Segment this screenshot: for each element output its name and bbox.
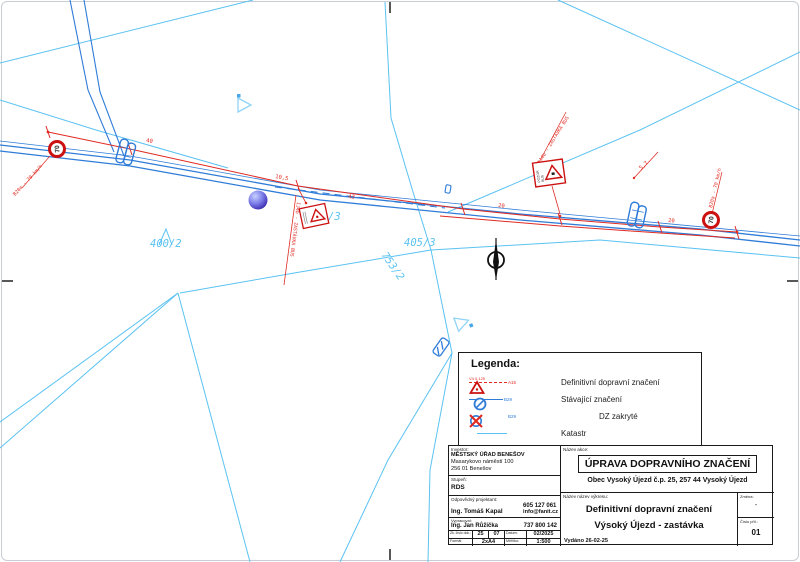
sign-code: B29 bbox=[508, 414, 516, 419]
sheet-number-cell: Číslo příl.: 01 bbox=[738, 518, 774, 546]
doc-no-year: 25 bbox=[473, 531, 489, 539]
dim-label: 40 bbox=[146, 138, 153, 145]
scale-label-cell: Měřítko: bbox=[505, 539, 527, 547]
change-cell: Změna: - bbox=[738, 493, 774, 518]
speed-limit-sign-left: 70 bbox=[50, 142, 65, 157]
title-block: Investor: MĚSTSKÝ ÚŘAD BENEŠOV Masarykov… bbox=[448, 445, 773, 545]
speed-limit-sign-right: 70 bbox=[704, 213, 719, 228]
legend-item-label: DZ zakryté bbox=[599, 412, 638, 421]
legend-item-label: Katastr bbox=[561, 429, 586, 438]
legend-item-cadastre: Katastr bbox=[469, 425, 701, 442]
legend-box: Legenda: V4 0,125 A15 Definitivní doprav… bbox=[458, 352, 702, 446]
drawing-title-line2: Výsoký Újezd - zastávka bbox=[561, 520, 737, 531]
drawing-title-line1: Definitivní dopravní značení bbox=[561, 504, 737, 515]
drawing-label: Název název výkresu: bbox=[561, 493, 737, 499]
sheet-value: 01 bbox=[738, 528, 774, 537]
stage-value: RDS bbox=[449, 482, 560, 491]
sheet-label: Číslo příl.: bbox=[738, 518, 774, 524]
no-standing-sign-icon bbox=[473, 397, 487, 411]
covered-sign-icon bbox=[469, 414, 483, 428]
sign-code: A15 bbox=[508, 380, 516, 385]
change-label: Změna: bbox=[738, 493, 774, 499]
investor-line: 256 01 Benešov bbox=[449, 466, 560, 473]
action-subtitle: Obec Vysoký Újezd č.p. 25, 257 44 Vysoký… bbox=[561, 477, 774, 484]
drawing-page: 40 10,5 43 20 20 5,7 B20a - 70 km/h B20a… bbox=[0, 0, 800, 562]
author-cell: Vypracoval: Ing. Jan Růžička 737 800 142 bbox=[449, 518, 561, 531]
road-lines bbox=[0, 0, 800, 246]
warning-sign-right: POZOR BUS bbox=[532, 159, 565, 187]
sign-code: B29 bbox=[504, 397, 512, 402]
investor-line: MĚSTSKÝ ÚŘAD BENEŠOV bbox=[449, 452, 560, 459]
dim-label: 5,7 bbox=[638, 160, 649, 171]
speed-limit-value: 70 bbox=[54, 145, 62, 153]
action-title: ÚPRAVA DOPRAVNÍHO ZNAČENÍ bbox=[578, 455, 757, 473]
warning-sign-mid bbox=[299, 204, 329, 229]
legend-title: Legenda: bbox=[471, 358, 701, 370]
legend-item-covered: B29 DZ zakryté bbox=[469, 408, 701, 425]
date-label: Datum: bbox=[505, 531, 526, 535]
legend-item-definitive: V4 0,125 A15 Definitivní dopravní značen… bbox=[469, 374, 701, 391]
legend-item-label: Stávající značení bbox=[561, 395, 622, 404]
bus-stop-label-right: IJ4b - ZASTÁVKA BUS bbox=[536, 115, 571, 165]
cadastre-line-icon bbox=[477, 433, 507, 434]
format-label: Formát bbox=[449, 539, 472, 543]
author-name: Ing. Jan Růžička bbox=[451, 523, 498, 529]
leader-right-sign bbox=[552, 186, 560, 214]
drawing-title-cell: Název název výkresu: Definitivní dopravn… bbox=[561, 493, 738, 546]
north-arrow-icon bbox=[488, 238, 504, 280]
designer-email: info@fanit.cz bbox=[523, 509, 558, 515]
designer-name: Ing. Tomáš Kapal bbox=[451, 508, 503, 515]
date-label-cell: Datum: bbox=[505, 531, 527, 539]
speed-limit-label-right: B20a - 70 km/h bbox=[708, 168, 723, 209]
investor-line: Masarykovo náměstí 100 bbox=[449, 459, 560, 466]
action-label: Název akce: bbox=[561, 446, 774, 452]
format-label-cell: Formát bbox=[449, 539, 473, 547]
legend-item-existing: B29 Stávající značení bbox=[469, 391, 701, 408]
doc-no-label-cell: Zk. číslo dok.: bbox=[449, 531, 473, 539]
date-value: 02/2025 bbox=[527, 531, 561, 539]
doc-no-seq: 07 bbox=[489, 531, 505, 539]
warning-triangle-icon bbox=[469, 380, 485, 395]
dim-label: 20 bbox=[498, 203, 505, 210]
existing-plate-sign-icon bbox=[432, 337, 450, 357]
sphere-marker-icon bbox=[249, 191, 268, 210]
scale-value: 1:500 bbox=[527, 539, 561, 547]
author-phone: 737 800 142 bbox=[524, 523, 557, 529]
designer-cell: Odpovědný projektant: Ing. Tomáš Kapal 6… bbox=[449, 496, 561, 518]
doc-no-label: Zk. číslo dok.: bbox=[449, 531, 472, 535]
scale-label: Měřítko: bbox=[505, 539, 526, 543]
parcel-label: 405/3 bbox=[404, 237, 436, 249]
existing-sign-symbols bbox=[237, 94, 473, 332]
parcel-label: /3 bbox=[328, 211, 341, 223]
change-value: - bbox=[738, 502, 774, 509]
format-value: 2xA4 bbox=[473, 539, 505, 547]
dim-label: 20 bbox=[668, 218, 675, 225]
existing-small-sign-icon bbox=[445, 185, 451, 194]
investor-cell: Investor: MĚSTSKÝ ÚŘAD BENEŠOV Masarykov… bbox=[449, 446, 561, 476]
speed-limit-value: 70 bbox=[708, 216, 716, 224]
action-cell: Název akce: ÚPRAVA DOPRAVNÍHO ZNAČENÍ Ob… bbox=[561, 446, 774, 493]
existing-triangle-sign-icon bbox=[237, 94, 251, 112]
issued-date: Vydáno 26-02-25 bbox=[564, 538, 608, 544]
parcel-label: 400/2 bbox=[150, 238, 182, 250]
existing-triangle-sign-icon bbox=[454, 313, 474, 332]
stage-cell: Stupeň: RDS bbox=[449, 476, 561, 496]
legend-item-label: Definitivní dopravní značení bbox=[561, 378, 660, 387]
speed-limit-label-left: B20a - 70 km/h bbox=[12, 164, 44, 198]
dim-label: 43 bbox=[348, 194, 355, 201]
